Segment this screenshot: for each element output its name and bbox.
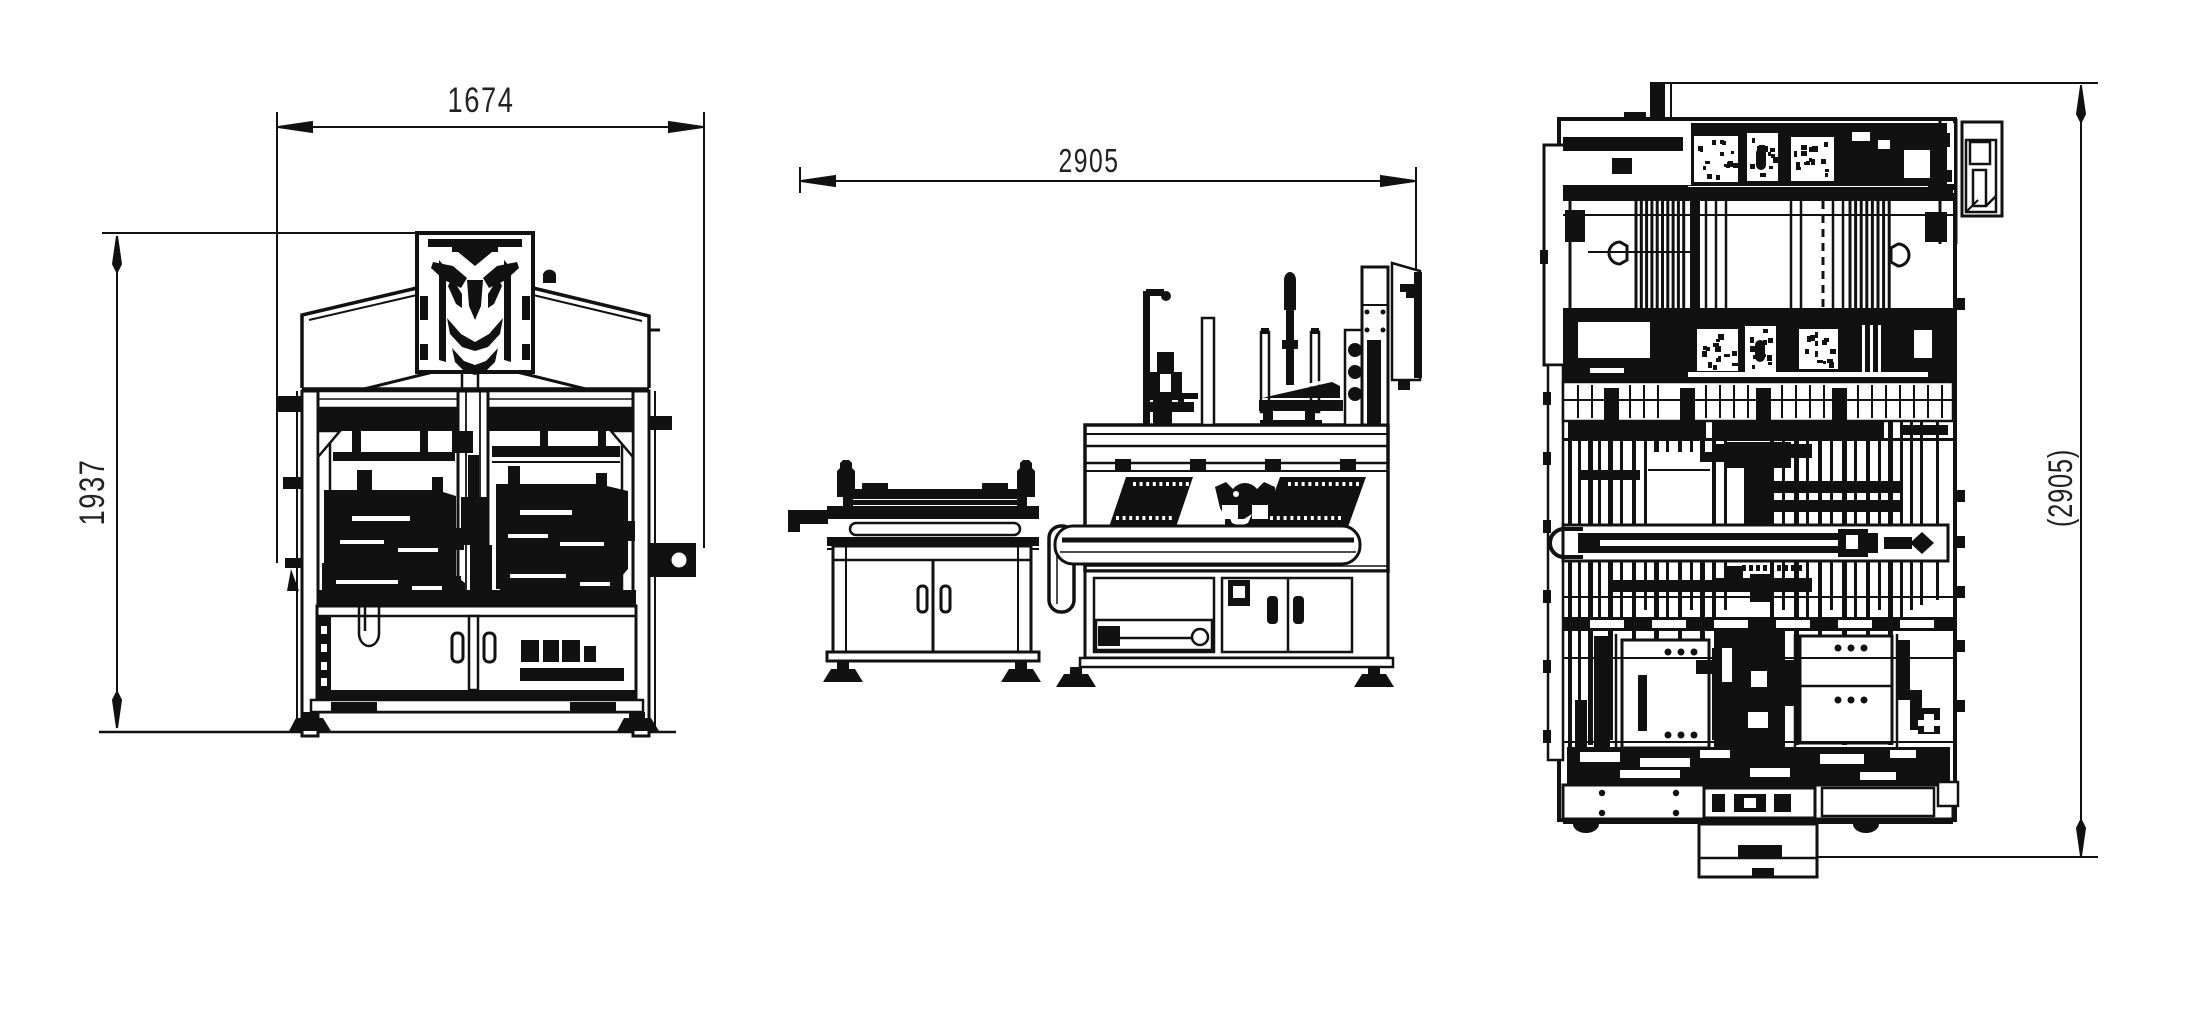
svg-text:2905: 2905 [1058,144,1119,180]
svg-text:1674: 1674 [448,81,515,120]
svg-text:1937: 1937 [73,459,112,526]
svg-text:(2905): (2905) [2043,449,2080,527]
